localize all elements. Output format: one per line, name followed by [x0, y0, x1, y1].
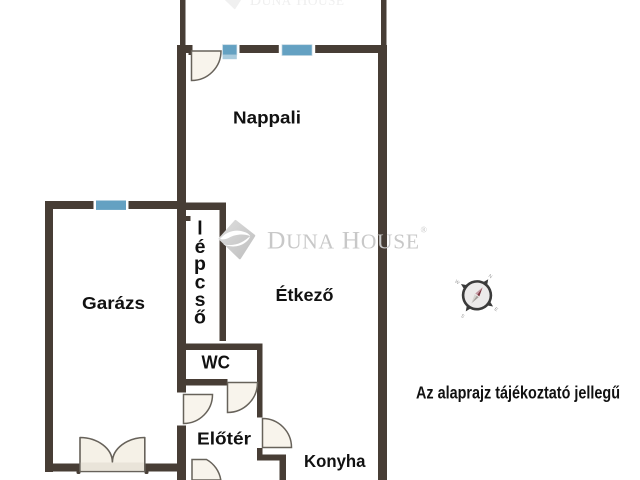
svg-text:Étkező: Étkező — [276, 284, 334, 305]
svg-text:®: ® — [421, 225, 428, 235]
svg-text:Konyha: Konyha — [304, 451, 366, 471]
svg-text:Nappali: Nappali — [233, 108, 301, 128]
svg-text:Az alaprajz tájékoztató jelleg: Az alaprajz tájékoztató jellegű — [416, 383, 620, 403]
svg-text:ő: ő — [194, 307, 206, 329]
svg-text:Garázs: Garázs — [82, 293, 145, 313]
svg-text:Előtér: Előtér — [197, 428, 251, 448]
svg-text:DUNA HOUSE: DUNA HOUSE — [250, 0, 344, 9]
svg-text:DUNA HOUSE: DUNA HOUSE — [267, 226, 419, 255]
svg-text:WC: WC — [202, 352, 231, 372]
